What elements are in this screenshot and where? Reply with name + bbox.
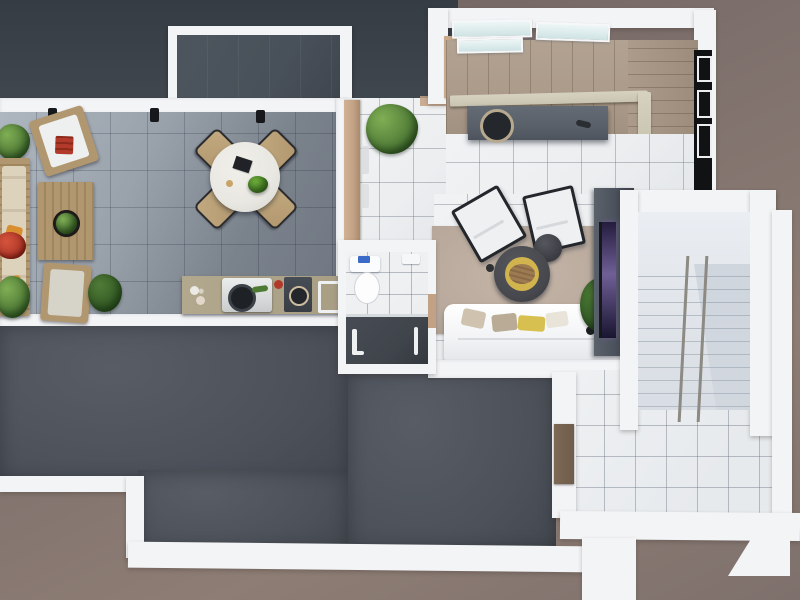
sofa-pillow-white [545,311,569,329]
floorplan-render [0,0,800,600]
lower-wall-corner [728,538,790,576]
shelf-frame [697,56,712,82]
parapet-wall-step-h [0,476,142,492]
skylight-pane [457,37,523,53]
roof-deck [138,470,348,550]
smoker-appliance [284,277,312,312]
pallet-coffee-table [38,182,94,260]
tv-screen-edge [599,222,602,338]
shelf-frame [697,90,712,118]
bathroom-walls [338,240,436,374]
table-centerpiece-plant [248,176,268,193]
radiator [361,146,369,174]
roof-deck [348,372,556,548]
shower-door-handle [414,327,418,355]
building-right-wall [772,210,792,522]
kitchen-island [468,106,608,140]
landing-door-brown [554,424,574,484]
entry-wood-wall [344,100,360,250]
wall-light-icon [256,110,265,123]
island-sink [480,109,514,143]
outdoor-kitchen-counter [182,276,342,314]
dining-set [198,132,292,222]
parapet-wall-bottom [128,542,592,573]
small-bowl [226,180,233,187]
toilet-bowl [354,272,380,304]
red-flower [274,280,283,289]
stair-railing-corner [638,92,651,140]
skylight-pane [536,22,611,43]
sofa-pillow-yellow [518,315,546,332]
sofa-pillow-beige [460,308,486,329]
sofa-pillow-khaki [491,313,518,333]
red-flower-planter [0,232,26,259]
sofa-seat-divider [458,338,610,340]
toilet-tank-item [358,256,370,263]
wall-light-icon [150,108,159,122]
plate [196,296,205,305]
stairwell-interior [638,212,750,410]
bathroom-sink [402,254,420,264]
bathroom-door [428,294,436,328]
radiator [361,184,369,208]
floor-vase [486,264,494,272]
landing-bottom-wall [560,511,800,541]
shelf-frame [697,124,712,158]
dining-table [210,142,280,212]
burner-ring [289,286,309,306]
plate [190,286,199,295]
lower-wall-stub [582,538,636,600]
armchair-seat-line [473,220,504,240]
roof-deck [0,326,348,480]
armchair-cushion [47,269,84,317]
laptop-on-table [232,156,252,174]
stairwell-left-wall [620,190,638,430]
coffee-table [494,246,550,302]
shower-floor [346,317,428,364]
herb-garnish [252,285,269,293]
armchair-seat-line [536,220,568,230]
wood-slice-decor [509,264,535,284]
courtyard-opening [177,35,340,106]
coffee-table-tray [505,257,539,291]
wall-shelving-black [694,50,712,192]
red-pillow [55,136,74,155]
outdoor-armchair-bottom [40,262,92,323]
island-faucet [575,119,591,128]
towel-hook [352,351,364,355]
bbq-cart [222,278,272,312]
skylight-pane [452,19,532,38]
tv-screen [602,222,616,338]
